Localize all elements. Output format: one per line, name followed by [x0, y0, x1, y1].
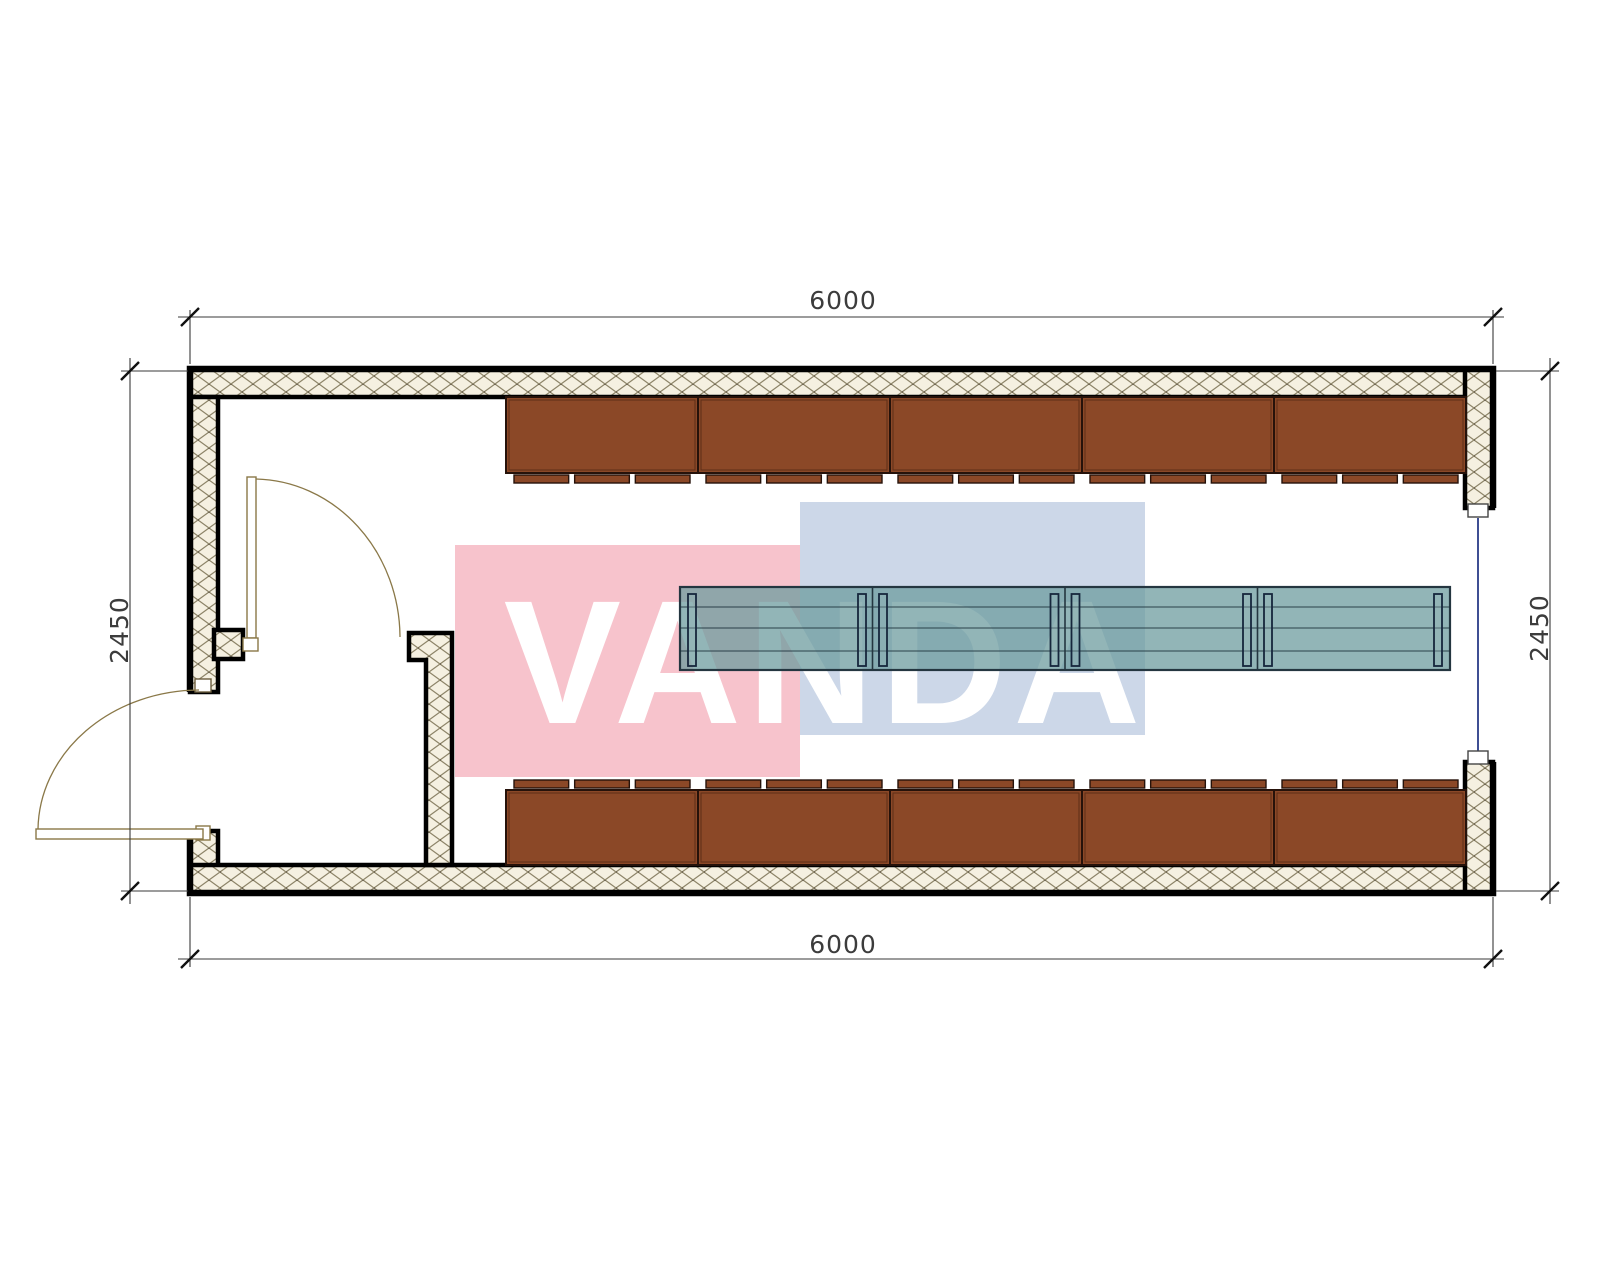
cabinet-plinth-segment: [1282, 780, 1337, 788]
exterior-door-swing-arc: [38, 690, 199, 829]
cabinet-plinth-segment: [767, 475, 822, 483]
cabinet-plinth-segment: [575, 475, 630, 483]
dimension-bottom-label: 6000: [809, 930, 877, 959]
cabinet-plinth-segment: [767, 780, 822, 788]
cabinet-plinth-segment: [635, 780, 690, 788]
cabinet-unit-bottom: [506, 790, 698, 865]
cabinet-plinth-segment: [1019, 780, 1074, 788]
dimension-right-label: 2450: [1525, 594, 1554, 662]
bench-table: [680, 587, 1450, 670]
wall-door-jamb-block: [214, 630, 243, 659]
cabinet-unit-top: [890, 397, 1082, 473]
cabinet-plinth-segment: [1403, 475, 1458, 483]
exterior-door-leaf: [36, 829, 203, 839]
cabinet-plinth-segment: [959, 475, 1014, 483]
dimension-top: 6000: [178, 286, 1504, 364]
cabinet-unit-top: [1082, 397, 1274, 473]
floor-plan-drawing: 6000 6000 2450 2450: [0, 0, 1600, 1280]
cabinet-plinth-segment: [706, 780, 761, 788]
window-right: [1468, 504, 1488, 764]
cabinet-plinth-segment: [1211, 475, 1266, 483]
cabinet-plinth-segment: [898, 475, 953, 483]
floor-plan-page: VANDA: [0, 0, 1600, 1280]
bench-leg: [1434, 594, 1442, 666]
cabinet-plinth-segment: [706, 475, 761, 483]
cabinet-plinth-segment: [959, 780, 1014, 788]
cabinet-plinth-segment: [1403, 780, 1458, 788]
wall-right-lower: [1465, 762, 1493, 893]
bench-leg: [858, 594, 866, 666]
dimension-left-label: 2450: [105, 596, 134, 664]
bench-leg: [879, 594, 887, 666]
cabinet-plinth-segment: [827, 780, 882, 788]
dimension-top-label: 6000: [809, 286, 877, 315]
cabinet-plinth-segment: [1090, 780, 1145, 788]
window-jamb-bottom: [1468, 751, 1488, 764]
cabinet-plinth-segment: [1343, 780, 1398, 788]
cabinet-plinth-segment: [1211, 780, 1266, 788]
wall-bottom: [190, 865, 1493, 893]
window-jamb-top: [1468, 504, 1488, 517]
dimension-left: 2450: [105, 358, 188, 904]
dimension-right: 2450: [1496, 358, 1559, 904]
cabinet-plinth-segment: [1090, 475, 1145, 483]
bench-leg: [1243, 594, 1251, 666]
cabinet-plinth-segment: [1019, 475, 1074, 483]
cabinet-unit-top: [698, 397, 890, 473]
interior-door-swing-arc: [256, 479, 400, 637]
cabinet-unit-top: [1274, 397, 1466, 473]
cabinet-plinth-segment: [635, 475, 690, 483]
cabinet-plinth-segment: [514, 780, 569, 788]
cabinet-plinth-segment: [898, 780, 953, 788]
cabinet-unit-bottom: [1082, 790, 1274, 865]
bench-leg: [688, 594, 696, 666]
dimension-bottom: 6000: [178, 897, 1504, 968]
cabinet-plinth-segment: [827, 475, 882, 483]
cabinet-plinth-segment: [514, 475, 569, 483]
interior-door-leaf: [247, 477, 256, 638]
cabinet-unit-bottom: [890, 790, 1082, 865]
wall-right-upper: [1465, 369, 1493, 508]
cabinet-plinth-segment: [1151, 780, 1206, 788]
interior-door-hinge-block: [243, 638, 258, 651]
bench-leg: [1051, 594, 1059, 666]
cabinet-unit-bottom: [1274, 790, 1466, 865]
cabinet-plinth-segment: [575, 780, 630, 788]
cabinet-unit-top: [506, 397, 698, 473]
wall-top: [190, 369, 1493, 397]
cabinet-plinth-segment: [1282, 475, 1337, 483]
bench-leg: [1264, 594, 1272, 666]
bench-leg: [1072, 594, 1080, 666]
cabinet-plinth-segment: [1151, 475, 1206, 483]
wall-partition-vestibule: [409, 633, 452, 865]
cabinet-unit-bottom: [698, 790, 890, 865]
cabinet-plinth-segment: [1343, 475, 1398, 483]
